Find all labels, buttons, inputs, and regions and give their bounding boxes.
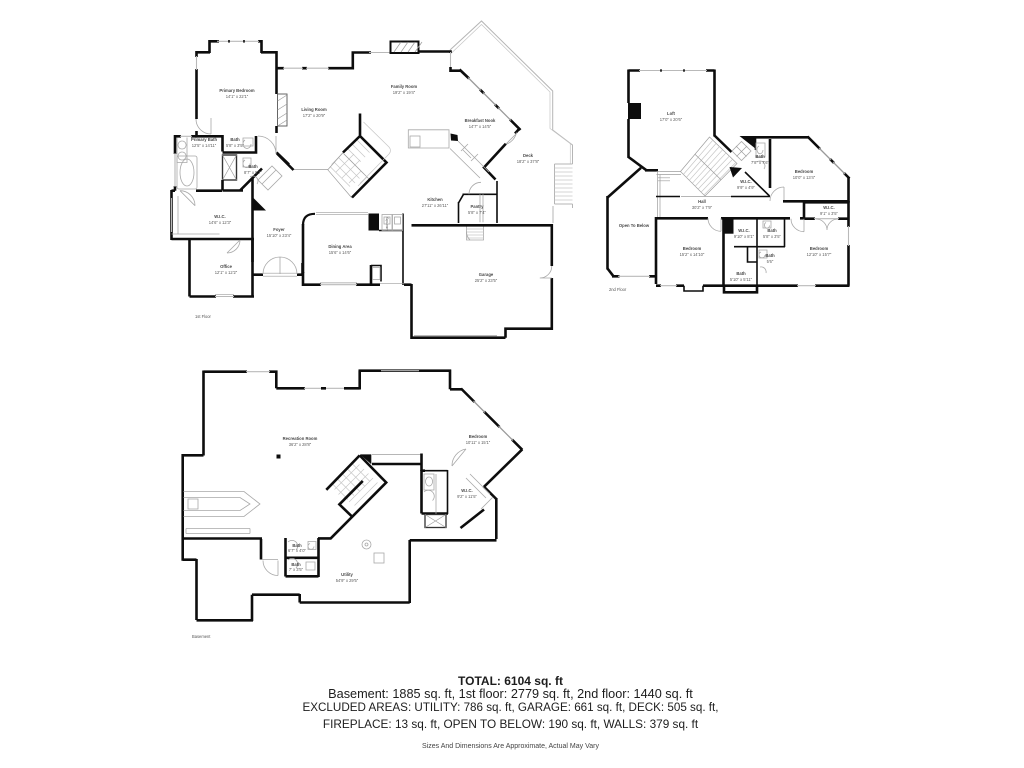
svg-text:Loft: Loft: [667, 111, 676, 116]
svg-text:15'10" x 23'4": 15'10" x 23'4": [267, 233, 292, 238]
svg-text:14'6" x 12'3": 14'6" x 12'3": [209, 220, 232, 225]
svg-text:W.I.C.: W.I.C.: [461, 488, 472, 493]
svg-text:Primary Bedroom: Primary Bedroom: [219, 88, 254, 93]
svg-text:Laundry: Laundry: [384, 217, 389, 231]
svg-text:25'2" x 23'5": 25'2" x 23'5": [475, 278, 498, 283]
svg-text:27'11" x 26'11": 27'11" x 26'11": [422, 203, 449, 208]
svg-text:10'0" x 13'4": 10'0" x 13'4": [793, 175, 816, 180]
svg-text:17'0" x 20'6": 17'0" x 20'6": [660, 117, 683, 122]
svg-text:54'9" x 29'5": 54'9" x 29'5": [336, 578, 359, 583]
svg-text:Open To Below: Open To Below: [619, 223, 650, 228]
svg-text:Basement: Basement: [192, 634, 211, 639]
svg-text:14'1" x 22'1": 14'1" x 22'1": [226, 94, 249, 99]
svg-text:Bedroom: Bedroom: [795, 169, 814, 174]
svg-text:17'2" x 20'9": 17'2" x 20'9": [303, 113, 326, 118]
svg-text:9'9" x 4'9": 9'9" x 4'9": [737, 185, 755, 190]
svg-text:Recreation Room: Recreation Room: [283, 436, 318, 441]
svg-text:19'2" x 19'4": 19'2" x 19'4": [393, 90, 416, 95]
svg-text:15'6" x 14'6": 15'6" x 14'6": [329, 250, 352, 255]
svg-text:Bedroom: Bedroom: [810, 246, 829, 251]
svg-text:8'7" x 5'7": 8'7" x 5'7": [244, 170, 262, 175]
svg-text:Bedroom: Bedroom: [683, 246, 702, 251]
svg-text:Kitchen: Kitchen: [427, 197, 443, 202]
svg-text:Pantry: Pantry: [470, 204, 484, 209]
svg-text:7' x 3'5": 7' x 3'5": [289, 567, 304, 572]
svg-text:14'7" x 14'5": 14'7" x 14'5": [469, 124, 492, 129]
svg-text:Hall: Hall: [698, 199, 706, 204]
svg-text:9'1" x 3'5": 9'1" x 3'5": [820, 211, 838, 216]
svg-text:15'2" x 14'10": 15'2" x 14'10": [680, 252, 705, 257]
svg-text:5'8" x 7'4": 5'8" x 7'4": [468, 210, 486, 215]
svg-text:Bath: Bath: [765, 253, 775, 258]
svg-text:Bath: Bath: [755, 154, 765, 159]
svg-text:2nd Floor: 2nd Floor: [609, 287, 627, 292]
svg-text:Garage: Garage: [479, 272, 494, 277]
svg-text:Living Room: Living Room: [301, 107, 327, 112]
svg-text:Office: Office: [220, 264, 233, 269]
svg-text:Utility: Utility: [341, 572, 353, 577]
svg-text:12'5" x 14'11": 12'5" x 14'11": [192, 143, 217, 148]
svg-text:W.I.C.: W.I.C.: [738, 228, 749, 233]
svg-text:5'8" x 3'5": 5'8" x 3'5": [763, 234, 781, 239]
svg-text:5'6": 5'6": [767, 259, 774, 264]
svg-text:Primary Bath: Primary Bath: [191, 137, 218, 142]
svg-text:Breakfast Nook: Breakfast Nook: [465, 118, 496, 123]
svg-text:9'10" x 8'1": 9'10" x 8'1": [734, 234, 755, 239]
svg-text:36'2" x 28'8": 36'2" x 28'8": [289, 442, 312, 447]
svg-text:W.I.C.: W.I.C.: [740, 179, 751, 184]
svg-text:10'11" x 15'1": 10'11" x 15'1": [466, 440, 491, 445]
svg-text:30'2" x 7'9": 30'2" x 7'9": [692, 205, 713, 210]
svg-text:5'10" x 5'11": 5'10" x 5'11": [730, 277, 753, 282]
svg-text:12'1" x 12'2": 12'1" x 12'2": [215, 270, 238, 275]
svg-text:Bath: Bath: [767, 228, 777, 233]
svg-text:W.I.C.: W.I.C.: [823, 205, 834, 210]
svg-text:6'7" x 4'0": 6'7" x 4'0": [288, 548, 306, 553]
svg-text:Foyer: Foyer: [273, 227, 285, 232]
svg-text:12'10" x 15'7": 12'10" x 15'7": [807, 252, 832, 257]
svg-text:7'8" x 7'6": 7'8" x 7'6": [751, 160, 769, 165]
svg-text:Dining Area: Dining Area: [328, 244, 352, 249]
svg-text:Family Room: Family Room: [391, 84, 418, 89]
svg-text:9'2" x 11'5": 9'2" x 11'5": [457, 494, 477, 499]
svg-text:1st Floor: 1st Floor: [195, 314, 212, 319]
svg-text:W.I.C.: W.I.C.: [214, 214, 225, 219]
svg-text:Bedroom: Bedroom: [469, 434, 488, 439]
svg-text:Deck: Deck: [523, 153, 534, 158]
svg-text:Bath: Bath: [230, 137, 240, 142]
svg-text:Bath: Bath: [736, 271, 746, 276]
svg-text:5'8" x 3'5": 5'8" x 3'5": [226, 143, 244, 148]
svg-text:Bath: Bath: [248, 164, 258, 169]
svg-text:18'2" x 37'8": 18'2" x 37'8": [517, 159, 540, 164]
